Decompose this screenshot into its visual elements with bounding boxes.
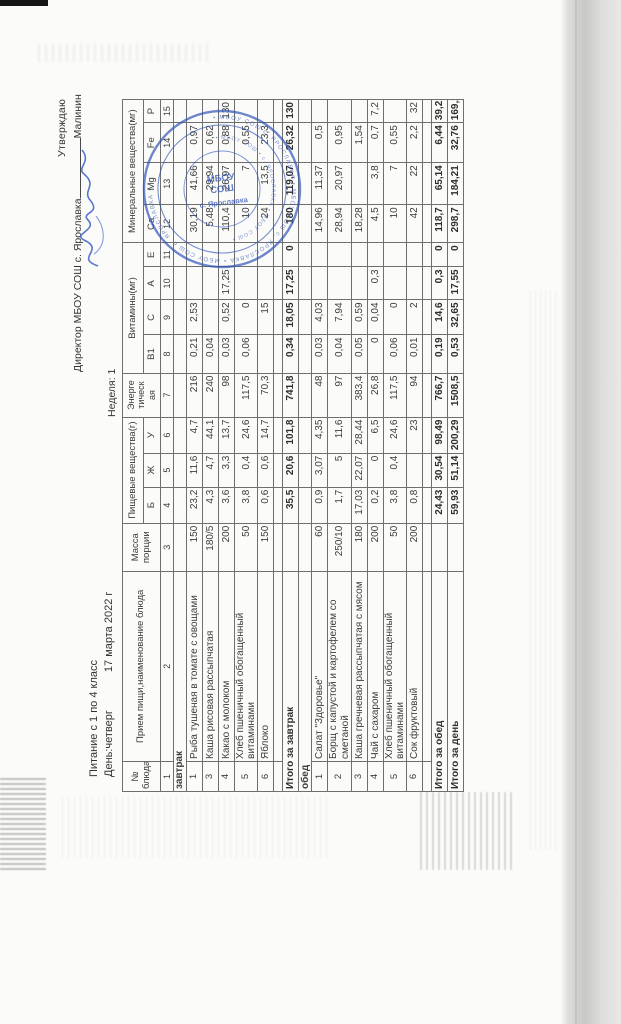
col-header-a: А xyxy=(144,267,161,300)
value-cell: 3,8 xyxy=(383,487,406,523)
value-cell xyxy=(312,243,328,267)
value-cell: 17,55 xyxy=(448,267,464,300)
value-cell xyxy=(258,100,274,123)
value-cell xyxy=(258,267,274,300)
bleed-through-smudge xyxy=(420,792,516,870)
value-cell: 0,95 xyxy=(328,123,351,163)
menu-table-header: № блюда Прием пищи,наименование блюда Ма… xyxy=(123,100,174,792)
value-cell: 59,93 xyxy=(448,487,464,523)
value-cell: 0,55 xyxy=(383,123,406,163)
value-cell xyxy=(328,243,351,267)
spacer-cell xyxy=(274,487,283,523)
value-cell: 0,06 xyxy=(235,335,258,373)
value-cell: 0,5 xyxy=(312,123,328,163)
dish-name-cell: Какао с молоком xyxy=(219,571,235,761)
spacer-cell xyxy=(423,123,432,163)
value-cell: 216 xyxy=(187,373,203,417)
ghost-cell xyxy=(174,453,187,487)
day-total-row: Итого за день59,9351,14200,291508,50,533… xyxy=(448,100,464,792)
ghost-cell xyxy=(174,523,187,571)
col-header-dish-name: Прием пищи,наименование блюда xyxy=(123,571,161,761)
ghost-cell xyxy=(299,163,312,205)
col-header-fe: Fe xyxy=(144,123,161,163)
dish-name-cell: Рыба тушеная в томате с овощами xyxy=(187,571,203,761)
value-cell: 1,54 xyxy=(351,123,367,163)
dish-number-cell: 4 xyxy=(367,761,383,791)
ghost-cell xyxy=(299,205,312,243)
spacer-cell xyxy=(423,761,432,791)
value-cell: 94 xyxy=(407,373,423,417)
spacer-cell xyxy=(423,100,432,123)
value-cell: 24,6 xyxy=(235,417,258,453)
value-cell xyxy=(351,243,367,267)
value-cell: 29,94 xyxy=(203,163,219,205)
ghost-cell xyxy=(174,267,187,300)
spacer-cell xyxy=(274,417,283,453)
ghost-cell xyxy=(299,373,312,417)
dish-number-cell: 1 xyxy=(187,761,203,791)
value-cell: 4,5 xyxy=(367,205,383,243)
value-cell xyxy=(187,100,203,123)
value-cell xyxy=(432,523,448,571)
ghost-cell xyxy=(174,335,187,373)
value-cell: 3,3 xyxy=(219,453,235,487)
dish-number-cell: 3 xyxy=(351,761,367,791)
value-cell: 98,49 xyxy=(432,417,448,453)
value-cell: 3,8 xyxy=(367,163,383,205)
value-cell: 0,06 xyxy=(383,335,406,373)
approval-block: Утверждаю Директор МБОУ СОШ с. Ярославка… xyxy=(56,52,84,372)
value-cell: 11,6 xyxy=(187,453,203,487)
dish-name-cell: Каша рисовая рассыпчатая xyxy=(203,571,219,761)
value-cell xyxy=(351,100,367,123)
value-cell: 28,94 xyxy=(328,205,351,243)
value-cell: 18,28 xyxy=(351,205,367,243)
value-cell: 150 xyxy=(258,523,274,571)
ghost-cell xyxy=(174,205,187,243)
value-cell: 26,97 xyxy=(219,163,235,205)
value-cell: 13,5 xyxy=(258,163,274,205)
value-cell: 6,44 xyxy=(432,123,448,163)
value-cell xyxy=(258,243,274,267)
col-number-cell: 10 xyxy=(161,267,174,300)
value-cell: 130 xyxy=(219,100,235,123)
dish-name-cell: Салат "Здоровье" xyxy=(312,571,328,761)
total-label: Итого за завтрак xyxy=(283,571,299,791)
day-label: День:четверг xyxy=(103,710,115,777)
value-cell: 766,7 xyxy=(432,373,448,417)
value-cell: 0,03 xyxy=(312,335,328,373)
col-numbers-row: 123456789101112131415 xyxy=(161,100,174,792)
spacer-cell xyxy=(274,335,283,373)
value-cell xyxy=(407,453,423,487)
col-header-mass: Масса порции xyxy=(123,523,161,571)
value-cell: 0,21 xyxy=(187,335,203,373)
document-title: Питание с 1 по 4 класс xyxy=(88,592,100,777)
value-cell: 23,3 xyxy=(258,123,274,163)
value-cell: 4,35 xyxy=(312,417,328,453)
value-cell: 6,5 xyxy=(367,417,383,453)
menu-table-body: завтрак1Рыба тушеная в томате с овощами1… xyxy=(174,100,464,792)
col-number-cell: 13 xyxy=(161,163,174,205)
ghost-cell xyxy=(174,123,187,163)
spacer-cell xyxy=(423,453,432,487)
value-cell: 24,43 xyxy=(432,487,448,523)
ghost-cell xyxy=(174,373,187,417)
dish-name-cell: Чай с сахаром xyxy=(367,571,383,761)
spacer-cell xyxy=(274,123,283,163)
approval-director-line: Директор МБОУ СОШ с. ЯрославкаМалинин xyxy=(71,52,84,372)
value-cell: 39,2 xyxy=(432,100,448,123)
value-cell: 0,8 xyxy=(407,487,423,523)
value-cell xyxy=(235,267,258,300)
dish-name-cell: Сок фруктовый xyxy=(407,571,423,761)
value-cell: 24,6 xyxy=(383,417,406,453)
col-number-cell: 11 xyxy=(161,243,174,267)
value-cell xyxy=(383,243,406,267)
group-header-minerals: Минеральные вещества(мг) xyxy=(123,100,144,243)
value-cell: 0,4 xyxy=(383,453,406,487)
total-label: Итого за обед xyxy=(432,571,448,791)
value-cell: 741,8 xyxy=(283,373,299,417)
ghost-cell xyxy=(174,417,187,453)
scanned-menu-document: Утверждаю Директор МБОУ СОШ с. Ярославка… xyxy=(0,0,621,1024)
value-cell: 10 xyxy=(383,205,406,243)
value-cell: 65,14 xyxy=(432,163,448,205)
value-cell: 17,25 xyxy=(283,267,299,300)
value-cell: 250/10 xyxy=(328,523,351,571)
week-label: Неделя: 1 xyxy=(106,369,118,417)
value-cell: 10 xyxy=(235,205,258,243)
col-number-cell: 2 xyxy=(161,571,174,761)
value-cell: 26,8 xyxy=(367,373,383,417)
menu-table: № блюда Прием пищи,наименование блюда Ма… xyxy=(122,99,464,792)
col-number-cell: 3 xyxy=(161,523,174,571)
value-cell: 60 xyxy=(312,523,328,571)
spacer-cell xyxy=(274,761,283,791)
value-cell: 22 xyxy=(407,163,423,205)
value-cell: 97 xyxy=(328,373,351,417)
dish-number-cell: 5 xyxy=(383,761,406,791)
day-date-line: День:четверг17 марта 2022 г xyxy=(103,592,115,777)
value-cell: 130 xyxy=(283,100,299,123)
col-header-fat: Ж xyxy=(144,453,161,487)
ghost-cell xyxy=(299,335,312,373)
value-cell: 0,19 xyxy=(432,335,448,373)
value-cell: 7,94 xyxy=(328,300,351,335)
value-cell: 0,4 xyxy=(235,453,258,487)
dish-row: 4Какао с молоком2003,63,313,7980,030,521… xyxy=(219,100,235,792)
col-header-p: Р xyxy=(144,100,161,123)
value-cell: 0,7 xyxy=(367,123,383,163)
value-cell: 48 xyxy=(312,373,328,417)
value-cell: 0,88 xyxy=(219,123,235,163)
ghost-cell xyxy=(299,523,312,571)
ghost-cell xyxy=(299,453,312,487)
value-cell: 0,34 xyxy=(283,335,299,373)
value-cell: 2 xyxy=(407,300,423,335)
value-cell: 3,07 xyxy=(312,453,328,487)
ghost-cell xyxy=(299,243,312,267)
value-cell xyxy=(328,100,351,123)
approval-director-text: Директор МБОУ СОШ с. Ярославка xyxy=(72,198,84,372)
value-cell: 13,7 xyxy=(219,417,235,453)
dish-name-cell: Хлеб пшеничный обогащенный витаминами xyxy=(383,571,406,761)
value-cell: 169,2 xyxy=(448,100,464,123)
value-cell: 180 xyxy=(351,523,367,571)
col-header-b1: В1 xyxy=(144,335,161,373)
dish-number-cell: 6 xyxy=(407,761,423,791)
value-cell: 0,3 xyxy=(367,267,383,300)
value-cell: 0,03 xyxy=(219,335,235,373)
value-cell: 0,53 xyxy=(448,335,464,373)
value-cell xyxy=(258,335,274,373)
dish-row: 6Яблоко1500,60,614,770,3152413,523,3 xyxy=(258,100,274,792)
value-cell: 28,44 xyxy=(351,417,367,453)
dish-row: 5Хлеб пшеничный обогащенный витаминами50… xyxy=(383,100,406,792)
value-cell: 4,3 xyxy=(203,487,219,523)
col-header-energy: Энерге тическ ая xyxy=(123,373,161,417)
dish-number-cell: 2 xyxy=(328,761,351,791)
value-cell: 0,3 xyxy=(432,267,448,300)
spacer-cell xyxy=(274,243,283,267)
ghost-cell xyxy=(299,487,312,523)
value-cell: 240 xyxy=(203,373,219,417)
value-cell: 101,8 xyxy=(283,417,299,453)
value-cell xyxy=(203,300,219,335)
spacer-cell xyxy=(274,523,283,571)
value-cell: 0,59 xyxy=(351,300,367,335)
ghost-cell xyxy=(299,267,312,300)
value-cell: 0,6 xyxy=(258,453,274,487)
spacer-cell xyxy=(274,571,283,761)
value-cell: 110,4 xyxy=(219,205,235,243)
value-cell: 4,7 xyxy=(203,453,219,487)
approval-word: Утверждаю xyxy=(56,52,68,157)
ghost-cell xyxy=(299,100,312,123)
col-number-cell: 7 xyxy=(161,373,174,417)
spacer-cell xyxy=(423,267,432,300)
date-label: 17 марта 2022 г xyxy=(103,592,115,672)
value-cell: 1,7 xyxy=(328,487,351,523)
value-cell: 0,9 xyxy=(312,487,328,523)
col-number-cell: 9 xyxy=(161,300,174,335)
dish-number-cell: 4 xyxy=(219,761,235,791)
value-cell: 23,2 xyxy=(187,487,203,523)
bleed-through-smudge xyxy=(0,778,46,870)
value-cell: 70,3 xyxy=(258,373,274,417)
spacer-cell xyxy=(423,373,432,417)
value-cell: 184,21 xyxy=(448,163,464,205)
value-cell xyxy=(367,243,383,267)
col-header-carbs: У xyxy=(144,417,161,453)
value-cell: 200 xyxy=(407,523,423,571)
value-cell: 20,6 xyxy=(283,453,299,487)
value-cell xyxy=(203,100,219,123)
value-cell xyxy=(312,267,328,300)
page-edge-line xyxy=(575,0,577,1024)
value-cell xyxy=(448,523,464,571)
value-cell: 0,62 xyxy=(203,123,219,163)
value-cell xyxy=(328,267,351,300)
value-cell: 5 xyxy=(328,453,351,487)
spacer-cell xyxy=(423,523,432,571)
col-number-cell: 14 xyxy=(161,123,174,163)
value-cell: 2,2 xyxy=(407,123,423,163)
spacer-cell xyxy=(423,163,432,205)
dish-name-cell: Борщ с капустой и картофелем со сметаной xyxy=(328,571,351,761)
approval-signer-name: Малинин xyxy=(72,94,84,138)
value-cell xyxy=(235,243,258,267)
section-row: завтрак xyxy=(174,100,187,792)
value-cell: 18,05 xyxy=(283,300,299,335)
title-block: Питание с 1 по 4 класс День:четверг17 ма… xyxy=(88,592,115,777)
value-cell: 44,1 xyxy=(203,417,219,453)
col-header-mg: Mg xyxy=(144,163,161,205)
value-cell: 4,7 xyxy=(187,417,203,453)
value-cell xyxy=(187,243,203,267)
spacer-cell xyxy=(274,100,283,123)
value-cell: 119,07 xyxy=(283,163,299,205)
value-cell: 4,03 xyxy=(312,300,328,335)
value-cell: 0,97 xyxy=(187,123,203,163)
dish-number-cell: 3 xyxy=(203,761,219,791)
value-cell: 0 xyxy=(283,243,299,267)
value-cell: 14,96 xyxy=(312,205,328,243)
value-cell: 0,04 xyxy=(203,335,219,373)
spacer-cell xyxy=(274,373,283,417)
value-cell: 11,6 xyxy=(328,417,351,453)
total-row: Итого за обед24,4330,5498,49766,70,1914,… xyxy=(432,100,448,792)
value-cell: 200 xyxy=(219,523,235,571)
value-cell xyxy=(383,100,406,123)
ghost-cell xyxy=(174,163,187,205)
value-cell: 20,97 xyxy=(328,163,351,205)
value-cell: 0 xyxy=(235,300,258,335)
ghost-cell xyxy=(174,100,187,123)
value-cell xyxy=(351,163,367,205)
col-number-cell: 8 xyxy=(161,335,174,373)
value-cell: 0,2 xyxy=(367,487,383,523)
ghost-cell xyxy=(299,123,312,163)
value-cell: 0,55 xyxy=(235,123,258,163)
value-cell: 0,05 xyxy=(351,335,367,373)
ghost-cell xyxy=(299,300,312,335)
value-cell: 50 xyxy=(383,523,406,571)
value-cell: 3,6 xyxy=(219,487,235,523)
dish-number-cell: 1 xyxy=(312,761,328,791)
ghost-cell xyxy=(299,417,312,453)
dish-name-cell: Каша гречневая рассыпчатая с мясом xyxy=(351,571,367,761)
dish-row: 6Сок фруктовый2000,823940,01242222,232 xyxy=(407,100,423,792)
value-cell: 41,66 xyxy=(187,163,203,205)
value-cell: 0,04 xyxy=(328,335,351,373)
value-cell: 15 xyxy=(258,300,274,335)
value-cell xyxy=(187,267,203,300)
value-cell: 200,29 xyxy=(448,417,464,453)
spacer-cell xyxy=(274,163,283,205)
spacer-cell xyxy=(274,300,283,335)
dish-row: 4Чай с сахаром2000,206,526,800,040,34,53… xyxy=(367,100,383,792)
spacer-row xyxy=(423,100,432,792)
value-cell: 17,03 xyxy=(351,487,367,523)
spacer-cell xyxy=(423,487,432,523)
value-cell: 298,7 xyxy=(448,205,464,243)
value-cell: 150 xyxy=(187,523,203,571)
value-cell xyxy=(283,523,299,571)
value-cell: 0,6 xyxy=(258,487,274,523)
value-cell: 0 xyxy=(448,243,464,267)
value-cell: 30,19 xyxy=(187,205,203,243)
value-cell: 117,5 xyxy=(235,373,258,417)
value-cell xyxy=(383,267,406,300)
dish-row: 1Рыба тушеная в томате с овощами15023,21… xyxy=(187,100,203,792)
dish-row: 2Борщ с капустой и картофелем со сметано… xyxy=(328,100,351,792)
value-cell: 50 xyxy=(235,523,258,571)
ghost-cell xyxy=(174,487,187,523)
spacer-cell xyxy=(274,453,283,487)
dish-row: 3Каша гречневая рассыпчатая с мясом18017… xyxy=(351,100,367,792)
spacer-row xyxy=(274,100,283,792)
value-cell xyxy=(407,243,423,267)
value-cell xyxy=(351,267,367,300)
value-cell: 11,37 xyxy=(312,163,328,205)
value-cell: 32 xyxy=(407,100,423,123)
value-cell: 23 xyxy=(407,417,423,453)
spacer-cell xyxy=(274,205,283,243)
col-header-e: Е xyxy=(144,243,161,267)
group-header-nutrients: Пищевые вещества(г) xyxy=(123,417,144,523)
value-cell: 5,48 xyxy=(203,205,219,243)
value-cell: 118,7 xyxy=(432,205,448,243)
document-content: Утверждаю Директор МБОУ СОШ с. Ярославка… xyxy=(56,62,526,802)
value-cell: 0,04 xyxy=(367,300,383,335)
value-cell: 3,8 xyxy=(235,487,258,523)
value-cell: 98 xyxy=(219,373,235,417)
spacer-cell xyxy=(423,205,432,243)
dish-row: 5Хлеб пшеничный обогащенный витаминами50… xyxy=(235,100,258,792)
total-row: Итого за завтрак35,520,6101,8741,80,3418… xyxy=(283,100,299,792)
value-cell: 24 xyxy=(258,205,274,243)
value-cell: 0,01 xyxy=(407,335,423,373)
value-cell: 14,7 xyxy=(258,417,274,453)
value-cell: 35,5 xyxy=(283,487,299,523)
value-cell xyxy=(203,267,219,300)
day-total-label: Итого за день xyxy=(448,571,464,791)
spacer-cell xyxy=(423,571,432,761)
col-header-ca: Са xyxy=(144,205,161,243)
value-cell: 200 xyxy=(367,523,383,571)
value-cell: 2,53 xyxy=(187,300,203,335)
col-header-c: С xyxy=(144,300,161,335)
value-cell xyxy=(203,243,219,267)
spacer-cell xyxy=(423,243,432,267)
scan-edge-artifact xyxy=(0,0,48,6)
value-cell xyxy=(219,243,235,267)
ghost-cell xyxy=(174,300,187,335)
value-cell: 30,54 xyxy=(432,453,448,487)
value-cell: 7 xyxy=(383,163,406,205)
value-cell: 14,6 xyxy=(432,300,448,335)
dish-name-cell: Яблоко xyxy=(258,571,274,761)
spacer-cell xyxy=(274,267,283,300)
value-cell: 383,4 xyxy=(351,373,367,417)
bleed-through-smudge xyxy=(530,290,558,850)
spacer-cell xyxy=(423,335,432,373)
value-cell: 51,14 xyxy=(448,453,464,487)
value-cell: 17,25 xyxy=(219,267,235,300)
col-number-cell: 6 xyxy=(161,417,174,453)
